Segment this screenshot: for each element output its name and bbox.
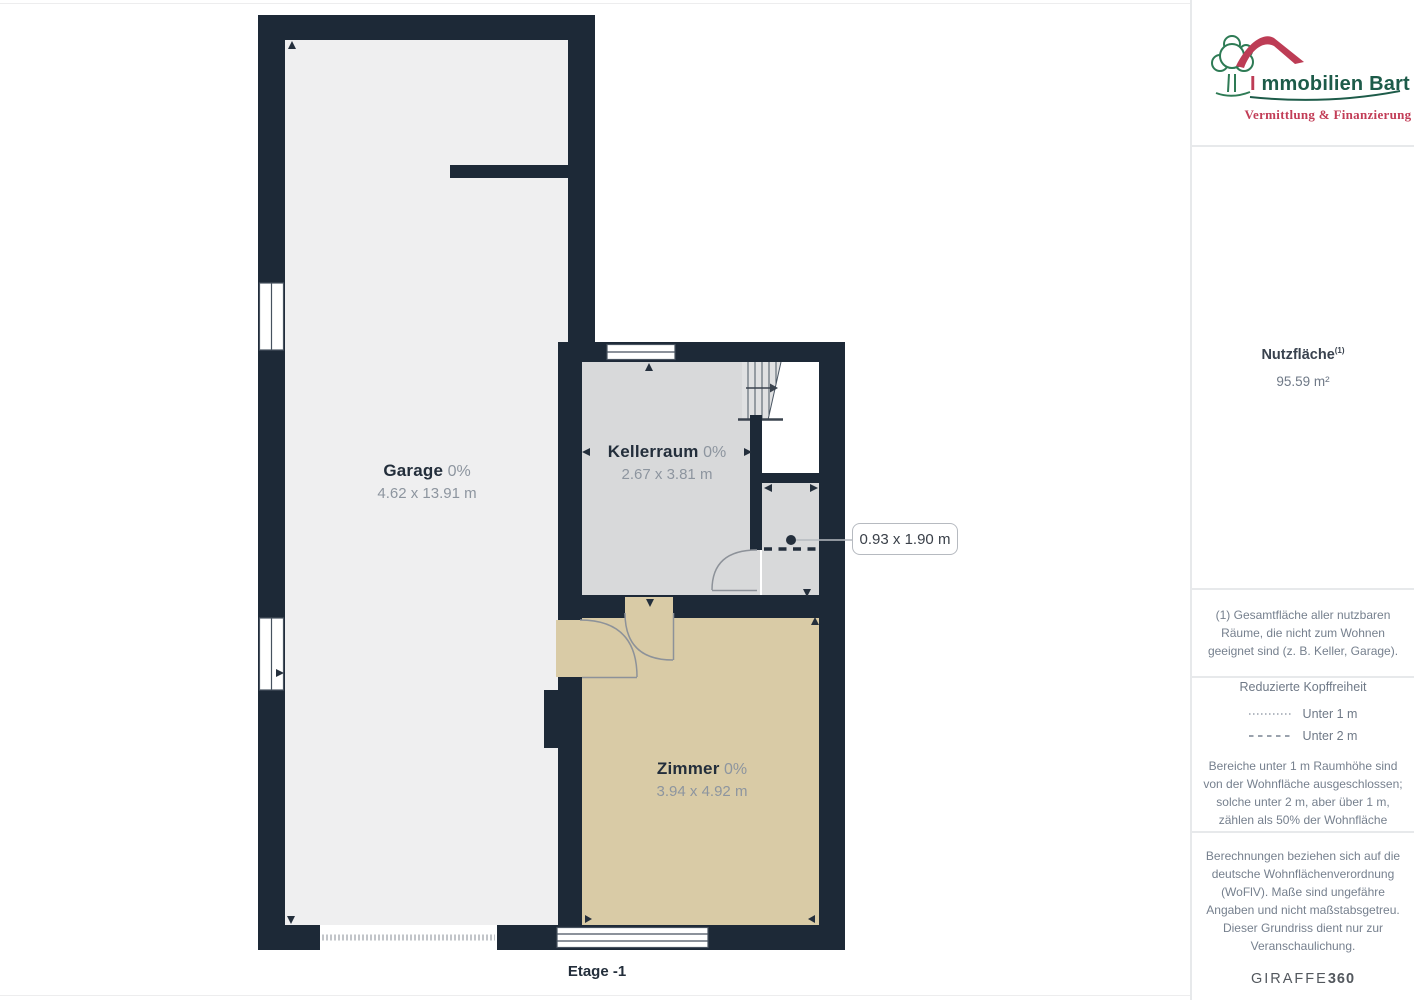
dashed-line-icon	[1249, 734, 1293, 738]
tree-icon	[1212, 36, 1253, 96]
headroom-legend-card: Reduzierte Kopffreiheit Unter 1 m Unter …	[1192, 678, 1414, 831]
logo-title-rest: mmobilien Bart	[1262, 73, 1411, 95]
giraffe360-number: 360	[1328, 971, 1355, 987]
logo-title: I mmobilien Bart	[1250, 73, 1410, 95]
legend-under-2m-label: Unter 2 m	[1303, 729, 1358, 743]
wall-left	[258, 15, 285, 950]
giraffe360-text: GIRAFFE	[1251, 971, 1328, 987]
window-zimmer	[557, 928, 708, 948]
usable-area-label: Nutzfläche	[1261, 347, 1334, 363]
legend-under-1m-label: Unter 1 m	[1303, 707, 1358, 721]
dotted-line-icon	[1249, 712, 1293, 716]
disclaimer-text: Berechnungen beziehen sich auf die deuts…	[1203, 847, 1403, 955]
logo-card: I mmobilien Bart Vermittlung & Finanzier…	[1192, 0, 1414, 145]
company-logo: I mmobilien Bart Vermittlung & Finanzier…	[1192, 0, 1414, 145]
logo-tagline: Vermittlung & Finanzierung	[1245, 107, 1412, 122]
wall-pier	[544, 690, 574, 748]
usable-area-value: 95.59 m²	[1276, 374, 1329, 389]
wall-stub	[450, 165, 568, 178]
wall-right	[819, 342, 845, 950]
kellerraum-floor	[582, 362, 760, 595]
measurement-dot	[786, 535, 796, 545]
footnote-card: (1) Gesamtfläche aller nutzbaren Räume, …	[1192, 590, 1414, 676]
wall-top	[258, 15, 595, 40]
disclaimer-card: Berechnungen beziehen sich auf die deuts…	[1192, 833, 1414, 1000]
headroom-text: Bereiche unter 1 m Raumhöhe sind von der…	[1203, 757, 1403, 829]
legend-under-2m: Unter 2 m	[1249, 729, 1358, 743]
logo-title-i: I	[1250, 73, 1256, 95]
zimmer-floor	[580, 618, 820, 925]
floor-level-label: Etage -1	[497, 963, 697, 980]
usable-area-title: Nutzfläche(1)	[1261, 346, 1344, 363]
info-sidebar: I mmobilien Bart Vermittlung & Finanzier…	[1190, 0, 1414, 1000]
legend-under-1m: Unter 1 m	[1249, 707, 1358, 721]
wall-keller-bottom	[558, 595, 820, 618]
floorplan-canvas: Garage 0% 4.62 x 13.91 m Kellerraum 0% 2…	[0, 0, 1190, 1000]
doorway-garage-zimmer	[556, 620, 584, 677]
measurement-callout: 0.93 x 1.90 m	[852, 523, 958, 555]
floorplan-drawing	[0, 0, 1190, 1000]
usable-area-card: Nutzfläche(1) 95.59 m²	[1192, 147, 1414, 588]
headroom-title: Reduzierte Kopffreiheit	[1240, 680, 1367, 694]
footnote-text: (1) Gesamtfläche aller nutzbaren Räume, …	[1203, 606, 1403, 660]
wall-small-room-top	[750, 473, 820, 483]
floorplan-page: Garage 0% 4.62 x 13.91 m Kellerraum 0% 2…	[0, 0, 1414, 1000]
usable-area-footnote-ref: (1)	[1335, 346, 1345, 355]
wall-garage-right	[568, 15, 595, 362]
giraffe360-logo: GIRAFFE360	[1251, 971, 1355, 987]
